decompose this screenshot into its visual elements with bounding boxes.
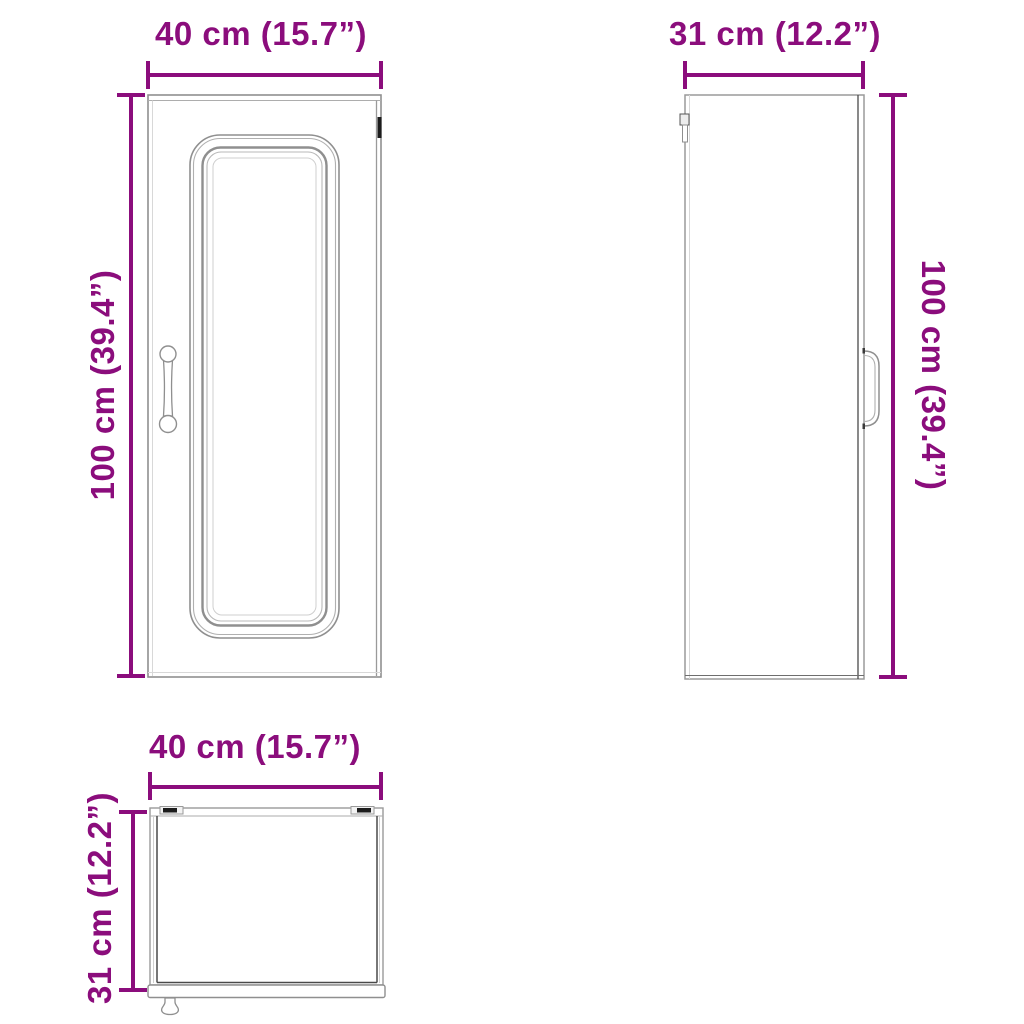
front-height-dim-line xyxy=(129,95,133,678)
top-depth-dim-line xyxy=(131,812,135,992)
front-width-dim-line xyxy=(147,73,383,77)
top-view-drawing xyxy=(146,806,390,1018)
side-handle-mount-bottom xyxy=(863,424,866,430)
glass-pane-edge xyxy=(213,158,316,615)
top-width-dim-line xyxy=(149,785,383,789)
wall-bracket xyxy=(680,114,689,125)
top-width-label: 40 cm (15.7”) xyxy=(135,726,375,768)
dim-tick xyxy=(683,61,687,89)
dim-tick xyxy=(117,674,145,678)
top-door-strip xyxy=(148,985,385,998)
dimension-diagram: 40 cm (15.7”) 100 cm (39.4”) 31 cm (12.2… xyxy=(0,0,1024,1024)
dim-tick xyxy=(148,772,152,800)
side-handle-mount-top xyxy=(863,348,866,354)
side-handle-outer xyxy=(864,351,879,426)
door-handle-knob-top xyxy=(160,346,176,362)
wall-bracket-arm xyxy=(683,125,688,142)
dim-tick xyxy=(379,61,383,89)
dim-tick xyxy=(379,772,383,800)
door-hinge xyxy=(378,117,382,138)
dim-tick xyxy=(879,675,907,679)
top-handle-knob xyxy=(162,998,179,1015)
dim-tick xyxy=(146,61,150,89)
cabinet-side-outline xyxy=(685,95,864,679)
side-view-drawing xyxy=(676,94,883,682)
front-width-label: 40 cm (15.7”) xyxy=(141,13,381,55)
dim-tick xyxy=(119,810,147,814)
dim-tick xyxy=(117,93,145,97)
dim-tick xyxy=(861,61,865,89)
door-handle-bar xyxy=(164,360,173,416)
door-handle-knob-bottom xyxy=(160,416,177,433)
cabinet-top-outline xyxy=(150,808,383,985)
side-handle-inner xyxy=(864,356,875,422)
side-width-dim-line xyxy=(684,73,865,77)
front-view-drawing xyxy=(147,94,383,680)
side-width-label: 31 cm (12.2”) xyxy=(655,13,895,55)
top-hinge-right xyxy=(357,808,371,813)
top-hinge-left xyxy=(163,808,177,813)
side-height-dim-line xyxy=(891,95,895,679)
front-height-label: 100 cm (39.4”) xyxy=(82,250,124,520)
top-depth-label: 31 cm (12.2”) xyxy=(79,763,121,1024)
side-height-label: 100 cm (39.4”) xyxy=(912,240,954,510)
dim-tick xyxy=(119,988,147,992)
dim-tick xyxy=(879,93,907,97)
